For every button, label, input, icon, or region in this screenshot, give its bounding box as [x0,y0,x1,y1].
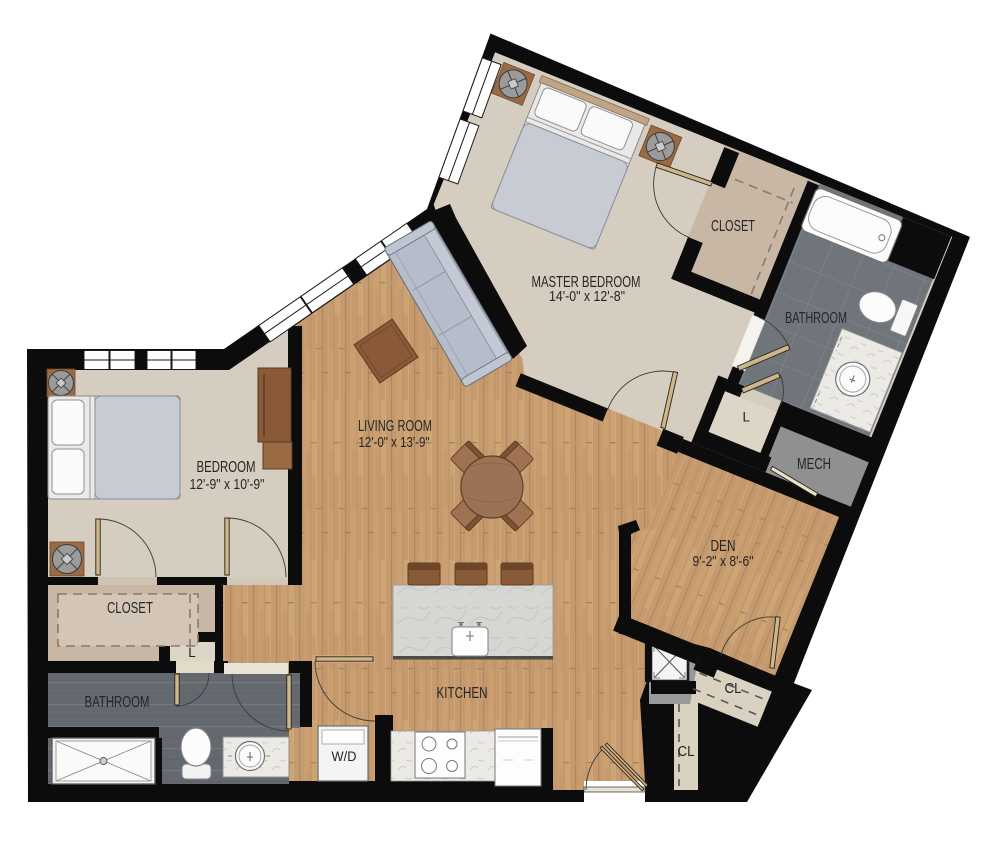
svg-text:MECH: MECH [797,456,831,473]
svg-text:W/D: W/D [332,749,357,764]
svg-text:BEDROOM: BEDROOM [197,459,256,476]
svg-text:LIVING ROOM: LIVING ROOM [358,418,432,435]
svg-text:12'-0" x 13'-9": 12'-0" x 13'-9" [359,434,430,451]
svg-text:12'-9" x 10'-9": 12'-9" x 10'-9" [190,476,265,493]
svg-text:L: L [742,409,750,424]
svg-text:BATHROOM: BATHROOM [85,694,150,711]
svg-text:CL: CL [725,681,742,697]
svg-text:CL: CL [678,744,695,760]
svg-text:14'-0" x 12'-8": 14'-0" x 12'-8" [549,288,625,305]
svg-text:L: L [188,645,196,660]
svg-text:BATHROOM: BATHROOM [785,310,847,327]
svg-text:CLOSET: CLOSET [711,218,755,235]
svg-text:KITCHEN: KITCHEN [437,685,488,702]
svg-text:9'-2" x 8'-6": 9'-2" x 8'-6" [693,553,754,570]
svg-text:CLOSET: CLOSET [107,600,153,617]
